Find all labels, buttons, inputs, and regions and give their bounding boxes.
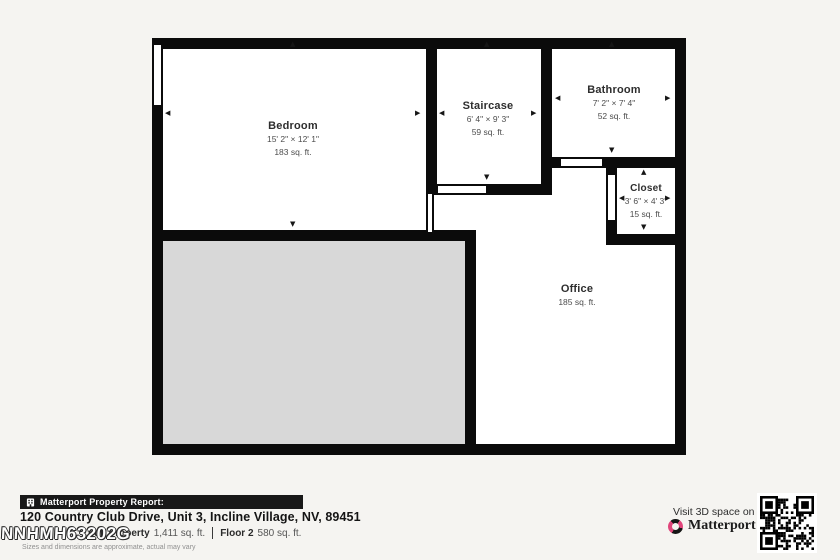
dimension-arrow-icon: ▼ <box>609 147 614 154</box>
window-opening <box>154 45 161 105</box>
closet-door-opening <box>606 175 617 220</box>
dimension-arrow-icon: ▼ <box>484 174 489 181</box>
outer-wall-bottom <box>152 444 686 455</box>
dimension-arrow-icon: ▼ <box>290 221 295 228</box>
hallway-thin-wall <box>426 194 434 232</box>
outer-wall-right <box>675 38 686 455</box>
dimension-arrow-icon: ▲ <box>641 169 646 176</box>
dimension-arrow-icon: ▶ <box>531 110 536 117</box>
dimension-arrow-icon: ◀ <box>619 195 624 202</box>
visit-3d-text: Visit 3D space on <box>673 506 755 518</box>
dimension-arrow-icon: ◀ <box>555 95 560 102</box>
disclaimer-text: Sizes and dimensions are approximate, ac… <box>22 544 196 551</box>
mls-watermark: NNHMH63202G <box>0 524 130 544</box>
dimension-arrow-icon: ▲ <box>290 41 295 48</box>
dimension-arrow-icon: ▶ <box>665 95 670 102</box>
bathroom-door-opening <box>561 157 602 168</box>
page: { "plan": { "rooms": { "bedroom": { "nam… <box>0 0 840 560</box>
dimension-arrow-icon: ▲ <box>609 41 614 48</box>
matterport-brand: Matterport ™ <box>668 518 767 534</box>
bedroom-staircase-wall <box>426 38 437 190</box>
dimension-arrow-icon: ◀ <box>165 110 170 117</box>
report-header-bar: Matterport Property Report: <box>20 495 303 509</box>
staircase-bathroom-wall <box>541 38 552 195</box>
building-icon <box>26 498 35 507</box>
full-property-value: 1,411 sq. ft. <box>154 528 206 539</box>
dimension-arrow-icon: ▼ <box>641 224 646 231</box>
matterport-wordmark: Matterport <box>688 518 756 534</box>
dimension-arrow-icon: ▲ <box>484 41 489 48</box>
outer-wall-top <box>152 38 686 49</box>
staircase-door-opening <box>438 184 486 195</box>
dimension-arrow-icon: ▶ <box>415 110 420 117</box>
property-address: 120 Country Club Drive, Unit 3, Incline … <box>20 510 361 524</box>
closet-bottom-wall <box>606 234 686 245</box>
matterport-logo-icon <box>668 519 683 534</box>
void-area <box>152 230 476 455</box>
stats-divider <box>212 527 213 539</box>
dimension-arrow-icon: ▶ <box>665 195 670 202</box>
report-bar-label: Matterport Property Report: <box>40 497 164 507</box>
dimension-arrow-icon: ◀ <box>439 110 444 117</box>
floor-label: Floor 2 <box>220 528 253 539</box>
floor-value: 580 sq. ft. <box>258 528 302 539</box>
qr-code <box>757 493 817 553</box>
